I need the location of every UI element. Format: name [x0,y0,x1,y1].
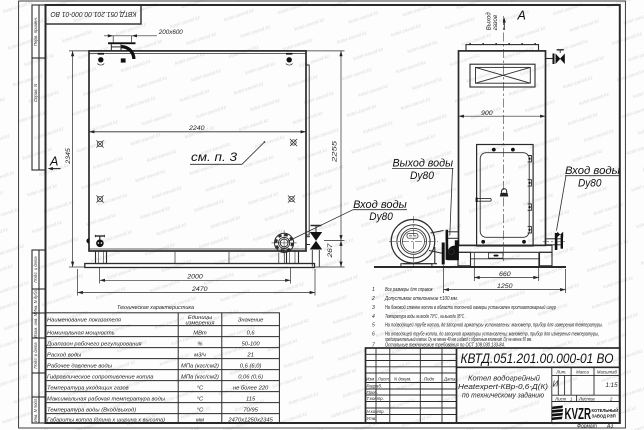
svg-text:Лист: Лист [554,396,566,401]
svg-text:газов: газов [493,15,499,30]
svg-text:Dу80: Dу80 [410,170,435,182]
svg-text:Подп. и дата: Подп. и дата [33,342,38,369]
svg-text:Подп: Подп [424,377,435,382]
svg-text:Наименование показателя: Наименование показателя [47,318,121,324]
svg-text:115: 115 [246,397,256,403]
svg-text:Инв. N дубл.: Инв. N дубл. [33,289,38,313]
svg-text:2: 2 [371,296,375,302]
svg-text:1250: 1250 [497,283,513,290]
svg-text:На подводящей трубе котла, до: На подводящей трубе котла, до запорной а… [385,322,603,329]
svg-text:2470: 2470 [191,286,208,293]
svg-text:2470х1250х2345: 2470х1250х2345 [227,418,273,424]
svg-text:МВт: МВт [193,331,207,337]
svg-text:Dу80: Dу80 [369,211,393,223]
svg-text:Н.контр.: Н.контр. [367,409,385,414]
svg-text:Гидравлическое сопротивление к: Гидравлическое сопротивление котла [47,375,154,381]
svg-text:Инв. N подл.: Инв. N подл. [33,398,38,422]
svg-text:Утв.: Утв. [367,416,377,421]
svg-text:0,6: 0,6 [247,331,256,337]
svg-text:Техническая характеристика: Техническая характеристика [117,305,195,311]
svg-text:Все размеры для справок: Все размеры для справок [385,287,433,293]
svg-text:Габариты котла (длина х ширина: Габариты котла (длина х ширина х высота) [47,418,165,424]
svg-text:Масштаб: Масштаб [597,369,618,374]
svg-text:А: А [517,9,526,23]
svg-text:Дата: Дата [443,377,456,382]
svg-text:см. п. 3: см. п. 3 [191,150,237,164]
svg-text:5: 5 [372,323,375,329]
svg-text:0,06 (0,6): 0,06 (0,6) [238,375,263,381]
svg-text:Рабочее давление воды: Рабочее давление воды [47,364,113,370]
svg-text:Dу80: Dу80 [578,178,602,190]
svg-text:Выход: Выход [486,12,492,31]
svg-text:Разраб.: Разраб. [367,384,383,389]
svg-text:Расход воды: Расход воды [47,353,82,359]
svg-text:Допустимое отклонение ±100 мм: Допустимое отклонение ±100 мм. [384,296,458,302]
svg-text:Листов: Листов [578,396,595,401]
svg-text:%: % [197,342,202,348]
svg-text:КОТЕЛЬНЫЙ: КОТЕЛЬНЫЙ [592,408,619,413]
svg-text:Масса: Масса [576,369,589,374]
svg-text:°С: °С [197,397,204,403]
svg-text:6: 6 [372,332,375,338]
svg-text:3: 3 [372,305,375,311]
svg-text:2000: 2000 [186,274,203,281]
svg-text:м3/ч: м3/ч [194,353,206,359]
svg-text:Вход воды: Вход воды [353,199,407,211]
svg-text:900: 900 [481,110,493,117]
svg-text:°С: °С [197,408,204,414]
svg-text:КВТД.051.201.00.000-01 ВО: КВТД.051.201.00.000-01 ВО [461,350,614,366]
svg-text:не более 220: не более 220 [233,386,269,392]
svg-text:660: 660 [499,271,511,278]
svg-text:267: 267 [327,243,334,259]
svg-text:4: 4 [372,314,375,320]
svg-text:А3: А3 [606,424,613,430]
svg-text:Температура уходящих газов: Температура уходящих газов [47,386,129,392]
svg-text:Лист: Лист [377,377,389,382]
svg-text:Вход воды: Вход воды [565,165,620,177]
svg-text:Подп. и дата: Подп. и дата [33,256,38,283]
svg-text:Выход воды: Выход воды [393,158,454,170]
svg-text:2255: 2255 [331,140,338,163]
svg-text:21: 21 [246,353,253,359]
svg-text:Взам. инв. N: Взам. инв. N [33,312,38,337]
svg-text:МПа (кгс/см2): МПа (кгс/см2) [181,375,219,381]
svg-text:50-100: 50-100 [242,342,261,348]
svg-text:Температура воды (Вход/выход): Температура воды (Вход/выход) [47,408,136,414]
svg-text:На боковой стенке котла в обла: На боковой стенке котла в области топочн… [385,304,556,311]
svg-text:Формат: Формат [577,424,597,430]
svg-text:Максимальная рабочая температу: Максимальная рабочая температура воды [47,397,166,403]
svg-text:Значение: Значение [238,318,264,324]
svg-text:KVZR: KVZR [565,406,592,423]
svg-text:Т.контр.: Т.контр. [367,396,384,401]
svg-text:КВТД.051.201.00.000-01 ВО: КВТД.051.201.00.000-01 ВО [50,10,136,19]
svg-text:А: А [49,155,58,169]
svg-text:2240: 2240 [188,125,205,132]
svg-text:Диапазон рабочего регулировани: Диапазон рабочего регулирования [46,342,142,348]
svg-text:1:15: 1:15 [606,382,619,389]
svg-text:°С: °С [197,386,204,392]
svg-text:Температура воды на входе 70°: Температура воды на входе 70°С , на выхо… [385,314,466,320]
svg-text:70/95: 70/95 [243,408,258,414]
svg-text:Изм: Изм [366,377,374,382]
svg-text:200х600: 200х600 [158,29,183,36]
svg-text:Heatexpert-КВр-0,6-Д(К): Heatexpert-КВр-0,6-Д(К) [458,384,548,391]
svg-text:Лит.: Лит. [555,369,566,374]
svg-text:2345: 2345 [65,148,72,165]
svg-text:ЗАВОД РЭП: ЗАВОД РЭП [592,413,616,418]
svg-text:И: И [553,380,559,389]
svg-text:Котел водогрейный: Котел водогрейный [468,375,540,383]
svg-text:1: 1 [372,287,375,293]
svg-text:Перв. примен.: Перв. примен. [33,17,38,46]
svg-text:Номинальная мощность: Номинальная мощность [47,331,115,337]
svg-text:N докум.: N докум. [394,377,411,382]
svg-text:измерения: измерения [185,321,214,327]
svg-text:Справ. N: Справ. N [33,83,38,102]
svg-text:мм: мм [196,418,204,424]
svg-text:Проб.: Проб. [367,390,379,395]
svg-text:по техническому заданию: по техническому заданию [462,392,545,400]
svg-text:0,6 (6,0): 0,6 (6,0) [240,364,262,370]
svg-text:МПа (кгс/см2): МПа (кгс/см2) [181,364,219,370]
